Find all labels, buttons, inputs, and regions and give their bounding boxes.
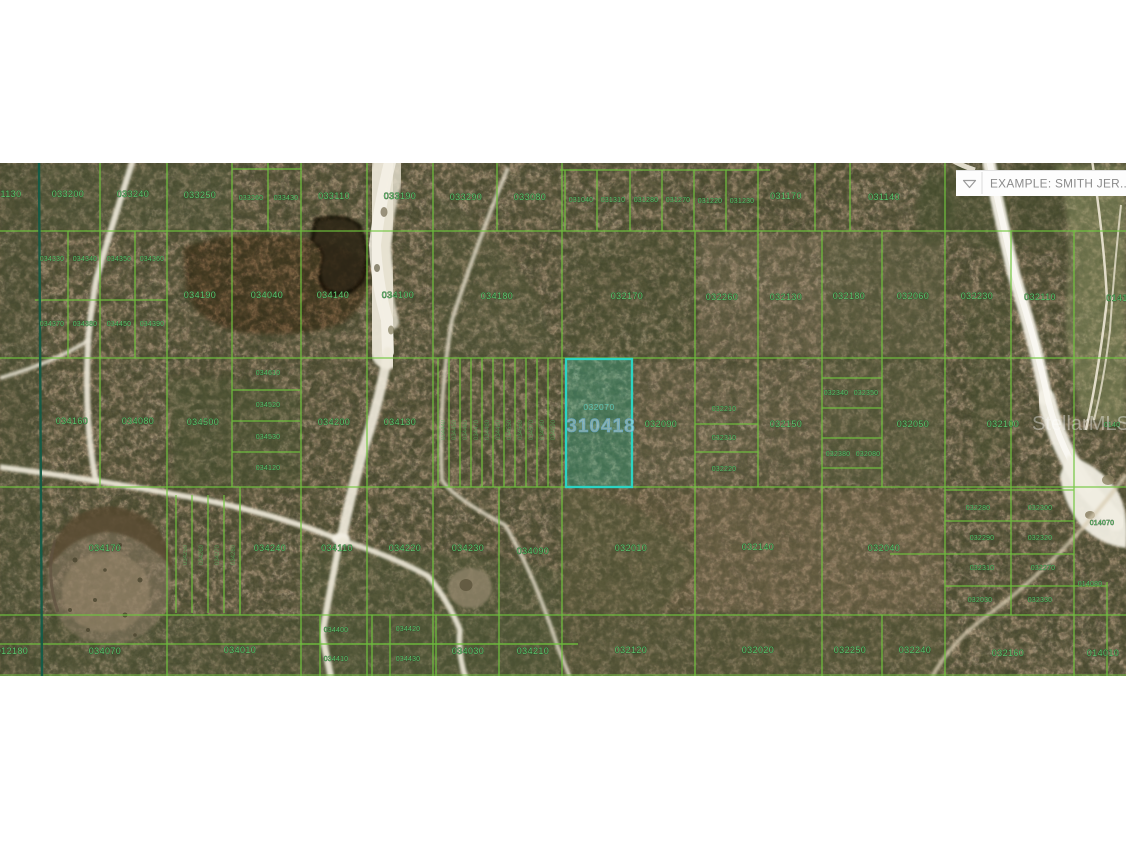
svg-text:032130: 032130: [770, 292, 802, 302]
svg-text:032140: 032140: [742, 542, 774, 552]
svg-text:034080: 034080: [122, 416, 154, 426]
svg-text:034180: 034180: [481, 291, 513, 301]
svg-text:032060: 032060: [897, 291, 929, 301]
svg-text:034610: 034610: [256, 370, 281, 377]
svg-text:034550: 034550: [507, 419, 513, 440]
svg-text:032280: 032280: [966, 505, 991, 512]
svg-text:031310: 031310: [601, 197, 626, 204]
svg-text:034270: 034270: [215, 544, 221, 565]
svg-text:034070: 034070: [89, 646, 121, 656]
svg-text:034370: 034370: [40, 321, 65, 328]
svg-text:032310: 032310: [712, 435, 737, 442]
svg-text:033290: 033290: [450, 192, 482, 202]
svg-text:034360: 034360: [140, 256, 165, 263]
svg-text:034100: 034100: [382, 290, 414, 300]
svg-text:032290: 032290: [970, 535, 995, 542]
svg-text:033200: 033200: [52, 189, 84, 199]
svg-text:034220: 034220: [389, 543, 421, 553]
svg-text:032070: 032070: [583, 402, 614, 412]
svg-text:032320: 032320: [1028, 535, 1053, 542]
svg-text:034010: 034010: [224, 645, 256, 655]
svg-text:034330: 034330: [40, 256, 65, 263]
svg-text:EXAMPLE: SMITH JER...: EXAMPLE: SMITH JER...: [990, 177, 1126, 191]
svg-text:012180: 012180: [0, 646, 28, 656]
svg-text:032090: 032090: [645, 419, 677, 429]
svg-text:032240: 032240: [899, 645, 931, 655]
svg-text:034470: 034470: [474, 419, 480, 440]
svg-text:032040: 032040: [868, 543, 900, 553]
svg-text:034450: 034450: [107, 321, 132, 328]
svg-text:034040: 034040: [251, 290, 283, 300]
svg-text:032120: 032120: [615, 645, 647, 655]
svg-text:032330: 032330: [1028, 597, 1053, 604]
svg-text:034340: 034340: [73, 256, 98, 263]
svg-text:032080: 032080: [856, 451, 881, 458]
svg-text:034030: 034030: [452, 646, 484, 656]
svg-text:0141: 0141: [1106, 293, 1126, 303]
svg-text:034110: 034110: [321, 543, 353, 553]
svg-text:034130: 034130: [384, 417, 416, 427]
svg-text:034160: 034160: [56, 416, 88, 426]
svg-text:032220: 032220: [712, 466, 737, 473]
svg-text:032210: 032210: [712, 406, 737, 413]
svg-text:034350: 034350: [107, 256, 132, 263]
svg-text:034280: 034280: [231, 544, 237, 565]
svg-text:032050: 032050: [897, 419, 929, 429]
svg-text:034390: 034390: [140, 321, 165, 328]
svg-text:032380: 032380: [826, 451, 851, 458]
svg-text:014010: 014010: [1087, 648, 1119, 658]
svg-text:033430: 033430: [274, 195, 299, 202]
svg-text:032340: 032340: [824, 390, 849, 397]
svg-text:034450: 034450: [452, 419, 458, 440]
svg-text:031170: 031170: [770, 191, 802, 201]
svg-text:033080: 033080: [514, 192, 546, 202]
svg-text:032020: 032020: [742, 645, 774, 655]
svg-text:033190: 033190: [384, 191, 416, 201]
svg-text:034520: 034520: [256, 402, 281, 409]
svg-text:034480: 034480: [485, 419, 491, 440]
svg-text:032350: 032350: [854, 390, 879, 397]
svg-text:031230: 031230: [730, 198, 755, 205]
svg-text:032230: 032230: [961, 291, 993, 301]
svg-text:034190: 034190: [184, 290, 216, 300]
svg-text:014070: 014070: [1090, 520, 1115, 527]
svg-text:034090: 034090: [517, 546, 549, 556]
svg-text:034500: 034500: [187, 417, 219, 427]
svg-text:034420: 034420: [396, 626, 421, 633]
svg-text:032250: 032250: [834, 645, 866, 655]
svg-text:034490: 034490: [496, 419, 502, 440]
svg-text:031280: 031280: [634, 197, 659, 204]
svg-text:034140: 034140: [317, 290, 349, 300]
svg-text:1130: 1130: [1, 189, 22, 199]
svg-text:034430: 034430: [396, 656, 421, 663]
svg-text:034240: 034240: [254, 543, 286, 553]
svg-text:034260: 034260: [199, 544, 205, 565]
svg-text:034250: 034250: [183, 544, 189, 565]
svg-text:031040: 031040: [569, 197, 594, 204]
svg-text:032100: 032100: [987, 419, 1019, 429]
svg-text:031220: 031220: [698, 198, 723, 205]
svg-text:031140: 031140: [868, 192, 900, 202]
svg-text:034170: 034170: [89, 543, 121, 553]
svg-text:034590: 034590: [551, 419, 557, 440]
svg-text:034230: 034230: [452, 543, 484, 553]
svg-text:014080: 014080: [1078, 581, 1103, 588]
svg-text:033250: 033250: [184, 190, 216, 200]
svg-text:034200: 034200: [318, 417, 350, 427]
svg-text:034400: 034400: [324, 627, 349, 634]
svg-text:032170: 032170: [611, 291, 643, 301]
svg-text:032110: 032110: [1024, 292, 1056, 302]
svg-text:034380: 034380: [73, 321, 98, 328]
svg-text:032010: 032010: [615, 543, 647, 553]
svg-text:034530: 034530: [256, 434, 281, 441]
svg-text:034210: 034210: [517, 646, 549, 656]
svg-text:032160: 032160: [992, 648, 1024, 658]
svg-text:StellarMLS: StellarMLS: [1032, 413, 1126, 435]
svg-text:032030: 032030: [968, 597, 993, 604]
svg-text:032310: 032310: [970, 565, 995, 572]
svg-text:034440: 034440: [441, 419, 447, 440]
svg-text:034580: 034580: [540, 419, 546, 440]
svg-text:034560: 034560: [518, 419, 524, 440]
svg-text:032150: 032150: [770, 419, 802, 429]
svg-text:034460: 034460: [463, 419, 469, 440]
svg-text:033110: 033110: [318, 191, 350, 201]
svg-text:034410: 034410: [324, 656, 349, 663]
svg-text:032270: 032270: [1031, 565, 1056, 572]
svg-text:032300: 032300: [1028, 505, 1053, 512]
svg-text:031270: 031270: [666, 197, 691, 204]
svg-text:032180: 032180: [833, 291, 865, 301]
svg-text:032260: 032260: [706, 292, 738, 302]
svg-text:034120: 034120: [256, 465, 281, 472]
svg-text:310418: 310418: [566, 416, 635, 437]
svg-text:033260: 033260: [239, 195, 264, 202]
svg-text:034570: 034570: [529, 419, 535, 440]
svg-text:033240: 033240: [117, 189, 149, 199]
